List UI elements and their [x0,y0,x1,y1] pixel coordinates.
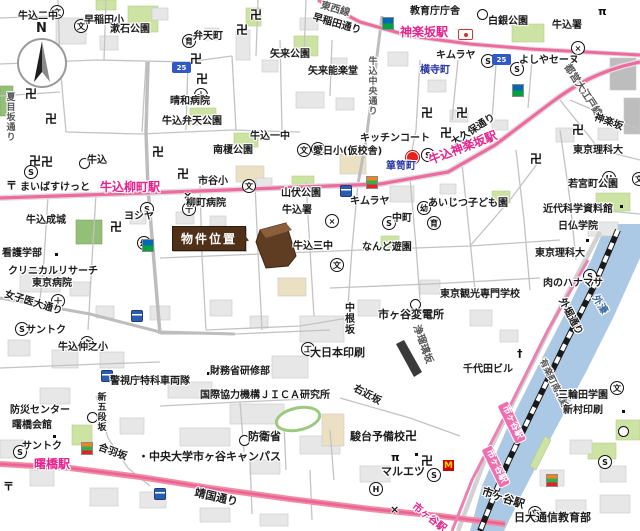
map-base-art [0,0,640,531]
map-canvas: 卍卍卍卍卍卍卍卍卍卍卍卍卍卍卍卍卍卍文文文文文文文文文文十十十××SSSSSSS… [0,0,640,531]
property-location-callout: 物件位置 [172,226,246,251]
compass-rose [18,39,66,87]
